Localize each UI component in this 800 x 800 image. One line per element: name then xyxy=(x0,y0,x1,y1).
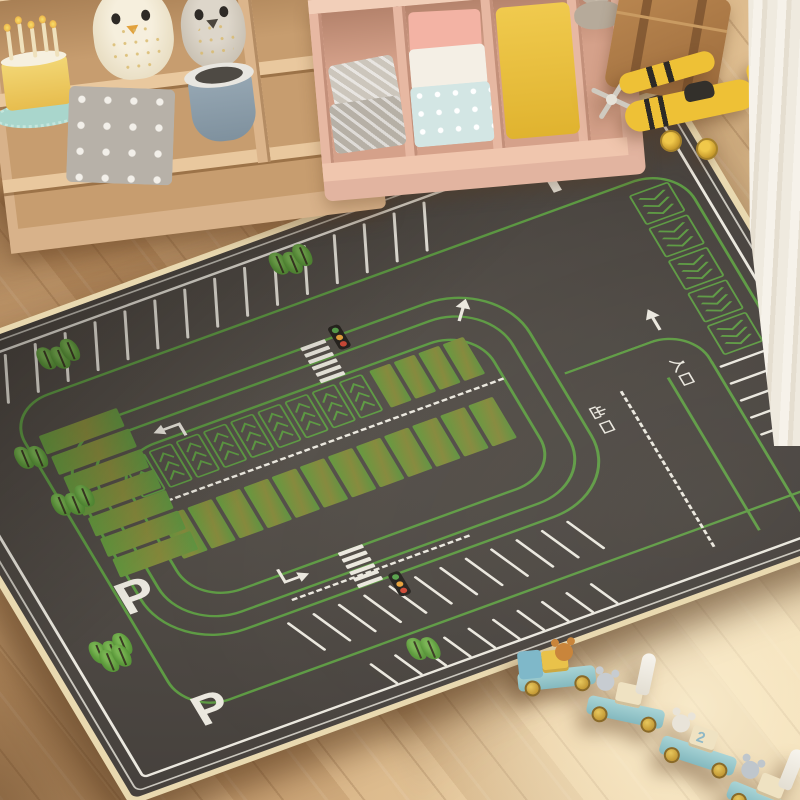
animal-ear xyxy=(595,666,604,675)
mouse-figure xyxy=(595,671,616,692)
candle-piece xyxy=(777,747,800,791)
plane-wheel xyxy=(660,130,682,152)
cat-figure xyxy=(670,712,693,735)
plane-wheel xyxy=(696,138,718,160)
pink-storage-shelf xyxy=(308,0,646,202)
playroom-photo: P P P xyxy=(0,0,800,800)
animal-ear xyxy=(611,669,620,678)
pattern-cushion xyxy=(329,95,407,155)
animal-ear xyxy=(756,758,766,768)
animal-ear xyxy=(551,638,560,647)
engine-cab xyxy=(517,649,544,679)
candle-piece xyxy=(635,652,657,696)
animal-ear xyxy=(567,637,576,646)
train-car xyxy=(585,659,674,734)
animal-ear xyxy=(671,706,681,716)
train-engine xyxy=(513,628,597,696)
wooden-toy-train: 2 xyxy=(516,632,800,800)
train-wheel xyxy=(574,674,592,692)
train-wheel xyxy=(524,680,542,698)
propeller-hub xyxy=(606,94,617,105)
animal-ear xyxy=(687,711,697,721)
train-block-number: 2 xyxy=(694,728,707,747)
yellow-bin xyxy=(495,2,580,140)
mint-dot-bin xyxy=(410,81,495,148)
polka-dot-storage-cube xyxy=(66,86,175,186)
owl-belly-speckles xyxy=(107,22,164,75)
animal-ear xyxy=(741,752,751,762)
mouse-figure xyxy=(739,758,762,781)
